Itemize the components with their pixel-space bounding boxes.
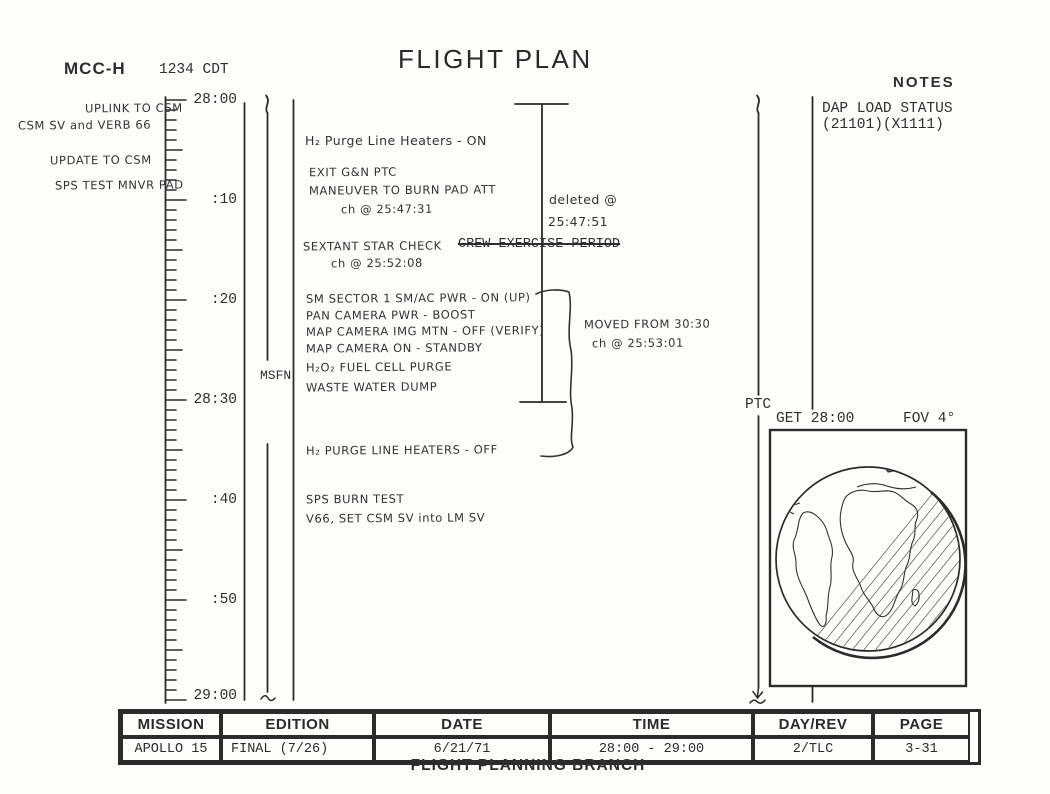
activity-map-camera-img: MAP CAMERA IMG MTN - OFF (VERIFY)	[306, 323, 544, 339]
continent-outlines	[790, 446, 929, 626]
ptc-top-arrow	[757, 96, 759, 114]
timeline-label-2830: 28:30	[177, 392, 237, 408]
msfn-coverage-label: MSFN	[260, 366, 269, 385]
dap-load-status-line1: DAP LOAD STATUS	[822, 101, 953, 117]
ptc-bottom-arrow	[750, 688, 765, 703]
activity-sps-burn-test: SPS BURN TEST	[306, 492, 404, 507]
timeline-label-40: :40	[177, 492, 237, 508]
annotation-moved-ch: ch @ 25:53:01	[592, 336, 684, 351]
page-title: FLIGHT PLAN	[398, 44, 593, 75]
timeline-label-10: :10	[177, 192, 237, 208]
flight-planning-branch-label: FLIGHT PLANNING BRANCH	[118, 757, 938, 775]
night-limb	[813, 492, 965, 658]
globe-fov-label: FOV 4°	[903, 411, 955, 427]
footer-header-edition: EDITION	[221, 712, 374, 737]
globe-frame	[770, 430, 966, 686]
activity-h2-purge-off: H₂ PURGE LINE HEATERS - OFF	[306, 442, 498, 457]
activity-crew-exercise-deleted: CREW EXERCISE PERIOD	[458, 237, 620, 252]
activity-ch-254731: ch @ 25:47:31	[341, 202, 433, 217]
globe-get-label: GET 28:00	[776, 411, 854, 427]
activity-exit-gn-ptc: EXIT G&N PTC	[309, 165, 397, 180]
timeline-label-50: :50	[177, 592, 237, 608]
activity-v66-set-sv: V66, SET CSM SV into LM SV	[306, 510, 485, 525]
activity-maneuver-burn: MANEUVER TO BURN PAD ATT	[309, 182, 496, 197]
activity-ch-255208: ch @ 25:52:08	[331, 256, 423, 271]
annotation-deleted-at: deleted @	[549, 192, 617, 207]
activity-sm-sector-pwr: SM SECTOR 1 SM/AC PWR - ON (UP)	[306, 290, 531, 306]
mcch-note-update-line1: UPDATE TO CSM	[50, 153, 152, 168]
annotation-moved-from: MOVED FROM 30:30	[584, 317, 711, 332]
british-isles	[875, 453, 878, 456]
footer-header-dayrev: DAY/REV	[753, 712, 873, 737]
timeline-label-20: :20	[177, 292, 237, 308]
mcch-note-update-line2: SPS TEST MNVR PAD	[55, 178, 184, 193]
mediterranean-coast	[857, 484, 916, 489]
activity-map-camera-on: MAP CAMERA ON - STANDBY	[306, 340, 483, 355]
annotation-deleted-time: 25:47:51	[548, 214, 608, 229]
activity-fuel-cell-purge: H₂O₂ FUEL CELL PURGE	[306, 359, 452, 374]
activity-sextant-check: SEXTANT STAR CHECK	[303, 239, 442, 254]
footer-header-mission: MISSION	[121, 712, 221, 737]
msfn-top-arrow	[266, 96, 268, 114]
madagascar-outline	[912, 590, 919, 607]
earth-outline	[776, 467, 960, 651]
dap-load-status-line2: (21101)(X1111)	[822, 117, 944, 133]
footer-header-time: TIME	[550, 712, 753, 737]
msfn-bottom-squiggle	[261, 696, 275, 701]
ptc-label: PTC	[743, 397, 773, 413]
footer-header-page: PAGE	[873, 712, 970, 737]
activity-h2-purge-on: H₂ Purge Line Heaters - ON	[305, 133, 487, 148]
activity-waste-water-dump: WASTE WATER DUMP	[306, 380, 437, 395]
flight-plan-page: FLIGHT PLAN MCC-H 1234 CDT NOTES UPLINK …	[0, 0, 1050, 794]
footer-header-date: DATE	[374, 712, 550, 737]
moved-brace	[536, 290, 573, 457]
timeline-label-2800: 28:00	[177, 92, 237, 108]
mcch-note-uplink-line1: UPLINK TO CSM	[85, 101, 183, 116]
middle-east-landmass	[912, 466, 929, 477]
earth-globe-figure	[770, 430, 966, 686]
scandinavia-landmass	[893, 446, 906, 455]
africa-outline	[840, 490, 917, 616]
europe-landmass	[883, 454, 913, 473]
terminator-shading	[813, 492, 965, 658]
local-time-label: 1234 CDT	[159, 62, 229, 78]
caribbean-marks	[790, 503, 800, 514]
mcch-note-uplink-line2: CSM SV and VERB 66	[18, 118, 151, 133]
south-america-outline	[793, 512, 832, 627]
mcch-column-title: MCC-H	[64, 59, 126, 79]
notes-column-title: NOTES	[893, 74, 955, 91]
activity-pan-camera-pwr: PAN CAMERA PWR - BOOST	[306, 307, 476, 322]
timeline-label-2900: 29:00	[177, 688, 237, 704]
